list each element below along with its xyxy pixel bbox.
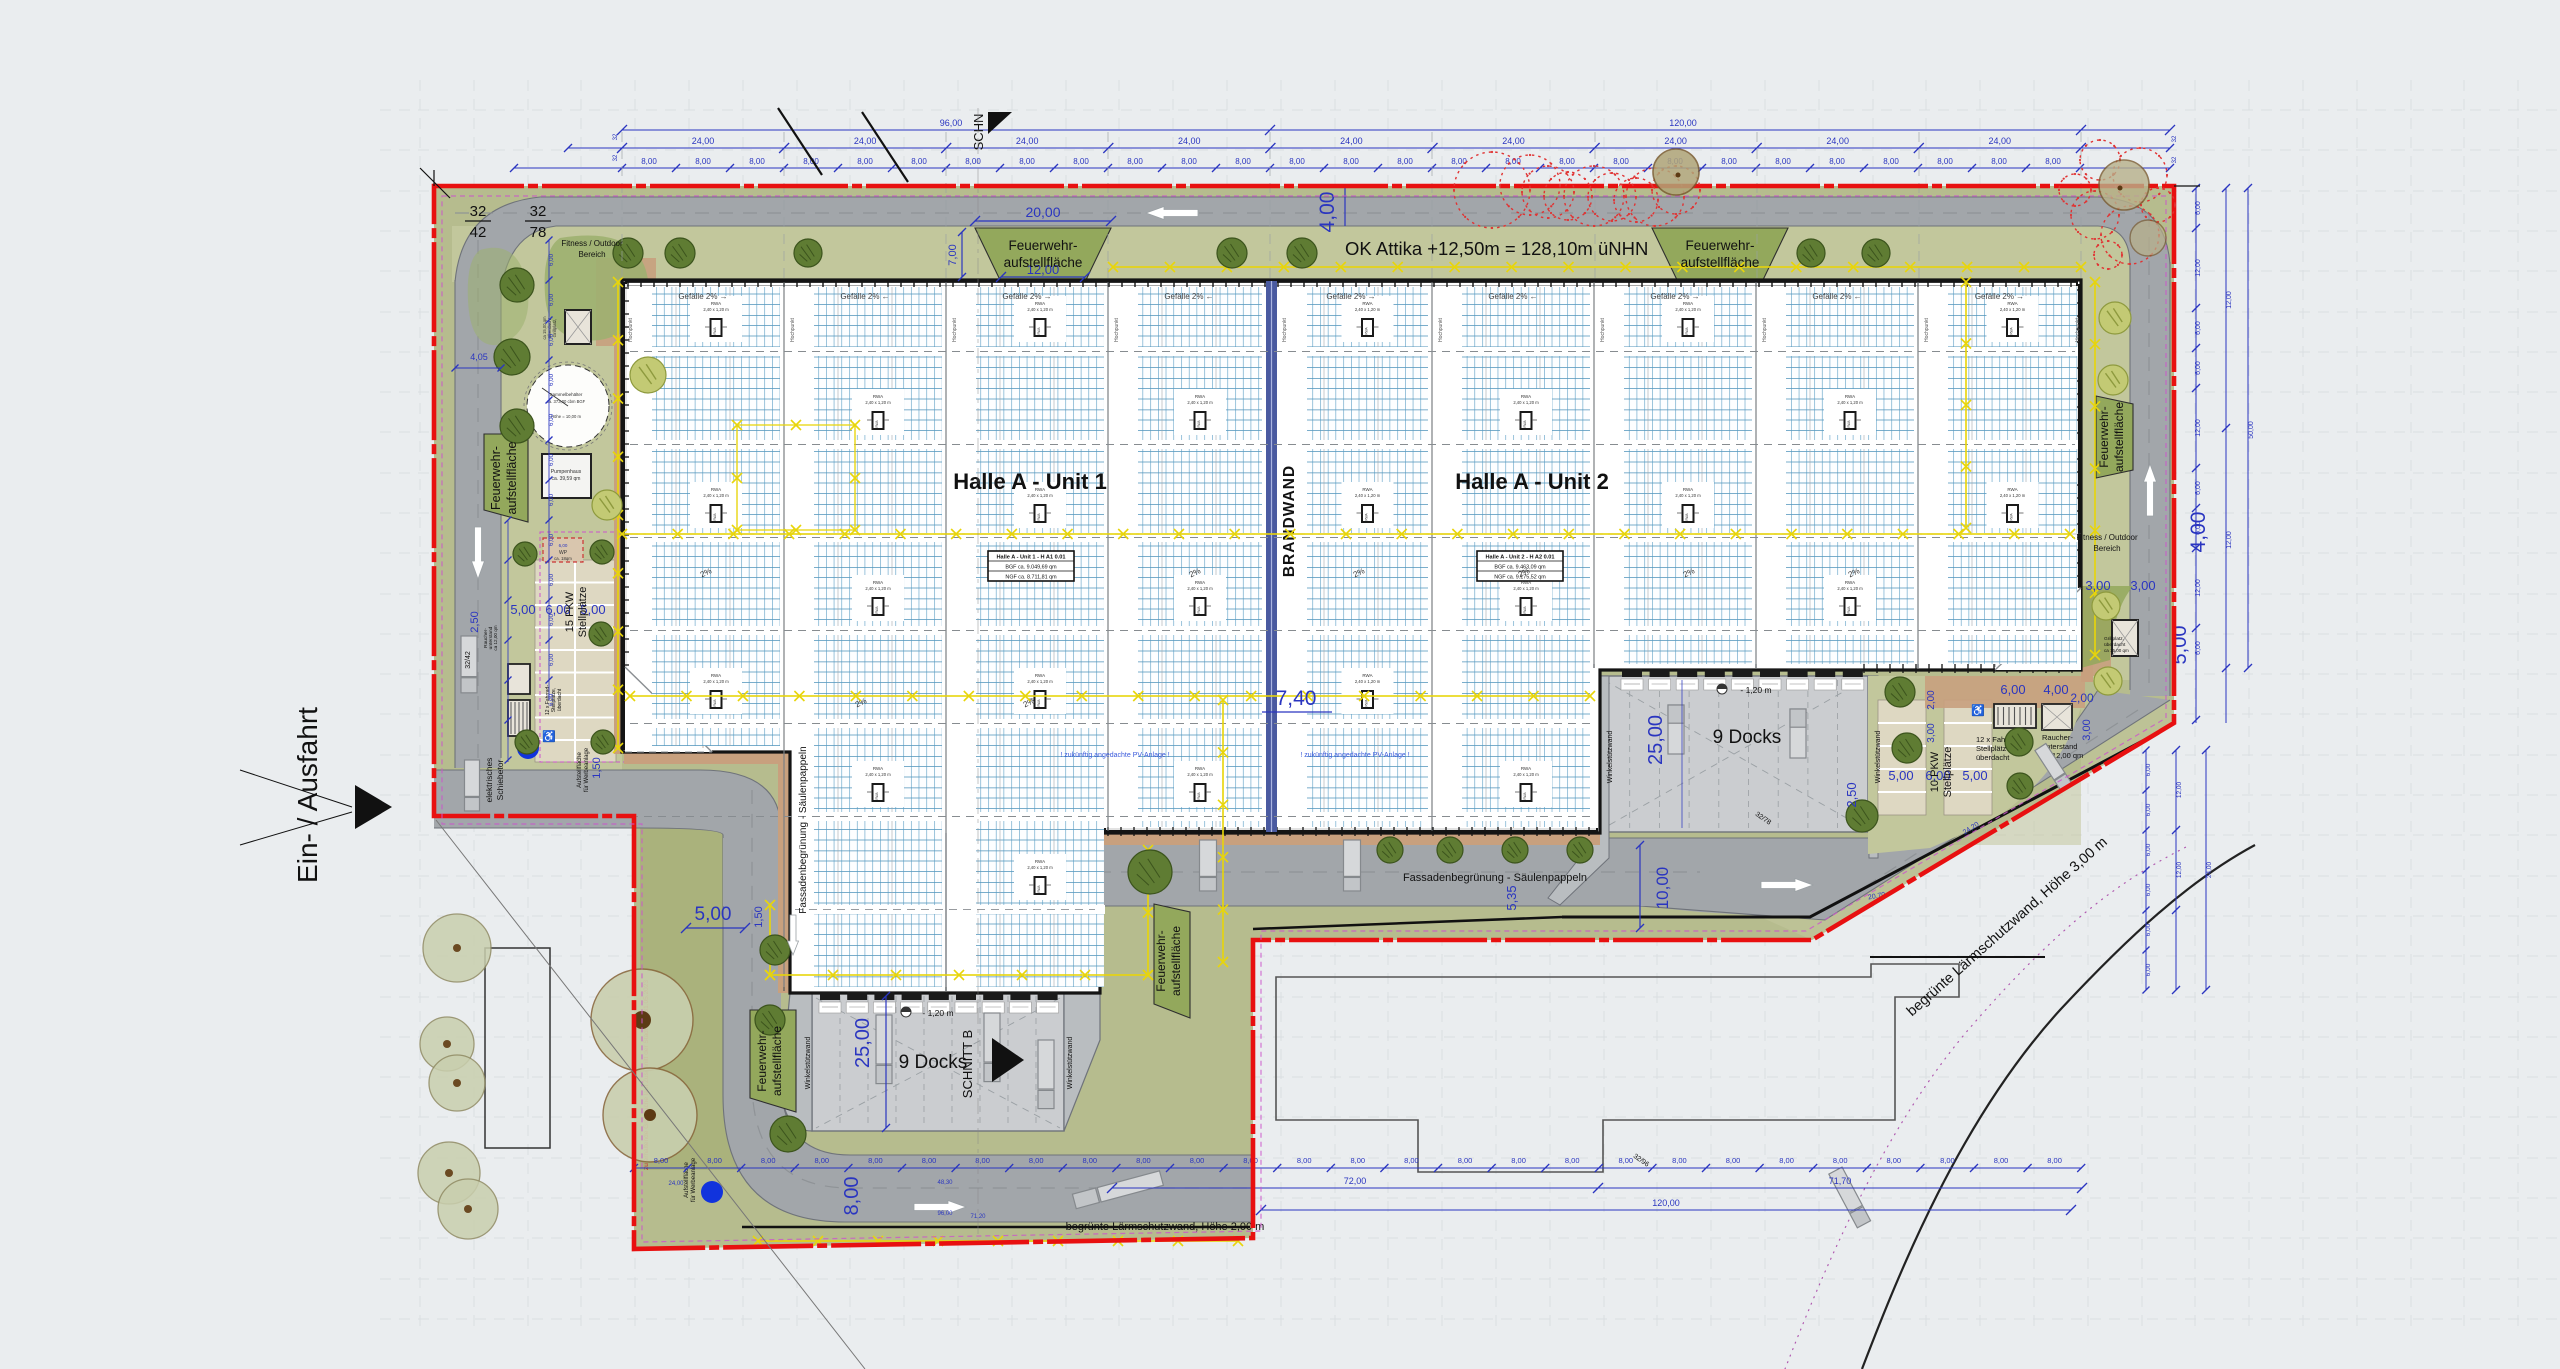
svg-text:Winkelstützwand: Winkelstützwand <box>805 1037 812 1090</box>
svg-text:RWA: RWA <box>1037 326 1041 334</box>
svg-text:Hochpunkt: Hochpunkt <box>1438 317 1444 342</box>
svg-text:120,00: 120,00 <box>1652 1198 1680 1208</box>
svg-text:8,00: 8,00 <box>1243 1156 1258 1165</box>
svg-text:RWA: RWA <box>1195 580 1205 585</box>
svg-text:5,00: 5,00 <box>1962 768 1987 783</box>
svg-text:RWA: RWA <box>1683 301 1693 306</box>
svg-text:10 PKW: 10 PKW <box>1929 751 1941 792</box>
svg-text:6,00: 6,00 <box>548 653 555 666</box>
svg-text:2,40 x 1,20 m: 2,40 x 1,20 m <box>703 493 729 498</box>
svg-text:aufstellfläche: aufstellfläche <box>505 441 519 514</box>
svg-text:6,00: 6,00 <box>2000 682 2025 697</box>
svg-text:RWA: RWA <box>1035 301 1045 306</box>
svg-text:12,00: 12,00 <box>2226 531 2233 549</box>
svg-text:24,00: 24,00 <box>1340 136 1363 146</box>
svg-text:RWA: RWA <box>711 301 721 306</box>
svg-text:Raucher-: Raucher- <box>2042 733 2073 742</box>
svg-text:2,40 x 1,20 m: 2,40 x 1,20 m <box>703 307 729 312</box>
svg-text:6,00: 6,00 <box>2195 201 2202 215</box>
svg-text:für Werbeanlage: für Werbeanlage <box>691 1157 697 1202</box>
svg-text:Gefälle 2% ←: Gefälle 2% ← <box>1812 292 1861 301</box>
svg-text:48,30: 48,30 <box>937 1180 953 1186</box>
svg-text:8,00: 8,00 <box>1029 1156 1044 1165</box>
svg-text:12,00: 12,00 <box>2176 781 2183 798</box>
svg-text:2,40 x 1,20 m: 2,40 x 1,20 m <box>1837 400 1863 405</box>
svg-text:96,00: 96,00 <box>937 1211 953 1217</box>
svg-text:5,00: 5,00 <box>510 602 535 617</box>
svg-text:aufstellfläche: aufstellfläche <box>2112 402 2126 472</box>
svg-text:für Werbeanlage: für Werbeanlage <box>584 747 590 792</box>
svg-text:RWA: RWA <box>1523 419 1527 427</box>
svg-text:RWA: RWA <box>1362 487 1372 492</box>
svg-text:Feuerwehr-: Feuerwehr- <box>1685 238 1754 253</box>
svg-text:12,00: 12,00 <box>2195 259 2202 277</box>
svg-text:2,40 x 1,20 m: 2,40 x 1,20 m <box>1187 772 1213 777</box>
svg-text:120,00: 120,00 <box>1669 118 1697 128</box>
svg-text:NGF ca. 8.711,81 qm: NGF ca. 8.711,81 qm <box>1005 575 1057 581</box>
svg-text:6,00: 6,00 <box>2145 923 2152 936</box>
svg-text:RWA: RWA <box>1683 487 1693 492</box>
svg-text:8,00: 8,00 <box>2045 157 2061 166</box>
svg-text:8,00: 8,00 <box>1883 157 1899 166</box>
svg-text:Gefälle 2% →: Gefälle 2% → <box>1650 292 1699 301</box>
svg-text:8,00: 8,00 <box>695 157 711 166</box>
svg-text:6,00: 6,00 <box>2195 481 2202 495</box>
svg-text:12,00: 12,00 <box>2176 861 2183 878</box>
svg-text:6,00: 6,00 <box>2145 803 2152 816</box>
svg-text:RWA: RWA <box>1685 512 1689 520</box>
svg-text:Fitness / Outdoor: Fitness / Outdoor <box>2076 533 2138 542</box>
svg-text:25,00: 25,00 <box>852 1018 874 1068</box>
svg-text:Höhe = 10,00 m: Höhe = 10,00 m <box>551 414 581 419</box>
svg-text:8,00: 8,00 <box>965 157 981 166</box>
svg-text:RWA: RWA <box>1362 301 1372 306</box>
svg-text:♿: ♿ <box>1971 704 1985 717</box>
svg-text:8,00: 8,00 <box>1775 157 1791 166</box>
svg-text:6,00: 6,00 <box>548 573 555 586</box>
svg-text:6,00: 6,00 <box>559 543 568 548</box>
svg-text:8,00: 8,00 <box>1886 1156 1901 1165</box>
svg-text:2,40 x 1,20 m: 2,40 x 1,20 m <box>1675 493 1701 498</box>
svg-text:Hochpunkt: Hochpunkt <box>1282 317 1288 342</box>
svg-text:24,00: 24,00 <box>1502 136 1525 146</box>
svg-text:8,00: 8,00 <box>868 1156 883 1165</box>
svg-text:RWA: RWA <box>1845 394 1855 399</box>
svg-text:8,00: 8,00 <box>761 1156 776 1165</box>
svg-text:Gefälle 2% ←: Gefälle 2% ← <box>840 292 889 301</box>
svg-text:8,00: 8,00 <box>1940 1156 1955 1165</box>
svg-text:96,00: 96,00 <box>940 118 963 128</box>
svg-text:RWA: RWA <box>713 326 717 334</box>
svg-text:Fitness / Outdoor: Fitness / Outdoor <box>561 239 623 248</box>
svg-text:RWA: RWA <box>711 487 721 492</box>
svg-text:begrünte Lärmschutzwand, Höhe: begrünte Lärmschutzwand, Höhe 2,00 m <box>1066 1221 1265 1233</box>
svg-text:8,00: 8,00 <box>1779 1156 1794 1165</box>
svg-text:RWA: RWA <box>1195 394 1205 399</box>
svg-text:Winkelstützwand: Winkelstützwand <box>1875 731 1882 784</box>
svg-text:2,50: 2,50 <box>1844 782 1859 807</box>
svg-text:32: 32 <box>470 203 487 220</box>
svg-text:Halle A - Unit 1 - H A1 0.01: Halle A - Unit 1 - H A1 0.01 <box>996 555 1065 561</box>
svg-text:32: 32 <box>2172 135 2178 142</box>
svg-text:! zukünftig angedachte PV-Anla: ! zukünftig angedachte PV-Anlage ! <box>1060 752 1169 759</box>
svg-text:8,00: 8,00 <box>1451 157 1467 166</box>
svg-text:Fassadenbegrünung - Säulenpapp: Fassadenbegrünung - Säulenpappeln <box>1403 872 1587 884</box>
svg-text:ca 12,00 qm: ca 12,00 qm <box>493 625 498 650</box>
svg-text:6,00: 6,00 <box>2145 843 2152 856</box>
svg-text:RWA: RWA <box>1197 791 1201 799</box>
svg-text:Pumpenhaus: Pumpenhaus <box>551 469 582 475</box>
svg-text:2,40 x 1,20 m: 2,40 x 1,20 m <box>865 400 891 405</box>
svg-text:24,00: 24,00 <box>1826 136 1849 146</box>
svg-text:2,40 x 1,20 m: 2,40 x 1,20 m <box>1027 307 1053 312</box>
svg-text:8,00: 8,00 <box>1019 157 1035 166</box>
svg-text:ca 15,00 qm: ca 15,00 qm <box>2104 648 2129 653</box>
svg-text:8,00: 8,00 <box>1618 1156 1633 1165</box>
svg-text:4,05: 4,05 <box>470 352 488 362</box>
svg-text:8,00: 8,00 <box>654 1156 669 1165</box>
svg-text:8,00: 8,00 <box>1235 157 1251 166</box>
svg-text:6,00: 6,00 <box>2195 641 2202 655</box>
svg-text:Schiebetor: Schiebetor <box>495 760 505 801</box>
svg-text:24,00: 24,00 <box>1664 136 1687 146</box>
svg-text:8,00: 8,00 <box>857 157 873 166</box>
svg-text:2,40 x 1,20 m: 2,40 x 1,20 m <box>865 772 891 777</box>
svg-text:32: 32 <box>613 133 619 140</box>
svg-text:Gefälle 2% →: Gefälle 2% → <box>1002 292 1051 301</box>
svg-text:8,00: 8,00 <box>1404 1156 1419 1165</box>
svg-text:24,00: 24,00 <box>692 136 715 146</box>
svg-text:aufstellfläche: aufstellfläche <box>1681 255 1760 270</box>
svg-text:5,00: 5,00 <box>1888 768 1913 783</box>
svg-text:Gefälle 2% →: Gefälle 2% → <box>678 292 727 301</box>
svg-text:Gefälle 2% →: Gefälle 2% → <box>1326 292 1375 301</box>
svg-text:25,00: 25,00 <box>1645 715 1667 765</box>
svg-text:Hochpunkt: Hochpunkt <box>628 317 634 342</box>
svg-text:ca. 373,00 cbm BGF: ca. 373,00 cbm BGF <box>547 399 586 404</box>
svg-text:32: 32 <box>2172 156 2178 163</box>
svg-text:42: 42 <box>470 224 487 241</box>
svg-text:RWA: RWA <box>1037 512 1041 520</box>
svg-text:8,00: 8,00 <box>1136 1156 1151 1165</box>
svg-text:RWA: RWA <box>1521 394 1531 399</box>
svg-text:8,00: 8,00 <box>1297 1156 1312 1165</box>
svg-text:BGF ca. 9.049,69 qm: BGF ca. 9.049,69 qm <box>1005 565 1057 571</box>
svg-text:RWA: RWA <box>713 512 717 520</box>
svg-text:12,00: 12,00 <box>2195 579 2202 597</box>
svg-text:8,00: 8,00 <box>1343 157 1359 166</box>
svg-text:8,00: 8,00 <box>1181 157 1197 166</box>
svg-text:7,40: 7,40 <box>1276 687 1317 710</box>
svg-text:8,00: 8,00 <box>1082 1156 1097 1165</box>
svg-text:2,00: 2,00 <box>2070 691 2094 705</box>
svg-text:4,00: 4,00 <box>1316 192 1339 233</box>
svg-text:Stellplätze: Stellplätze <box>1942 747 1954 798</box>
svg-text:20,00: 20,00 <box>1025 204 1060 220</box>
svg-text:2,40 x 1,20 m: 2,40 x 1,20 m <box>1837 586 1863 591</box>
svg-text:Halle A - Unit 1: Halle A - Unit 1 <box>953 469 1107 494</box>
svg-text:aufstellfläche: aufstellfläche <box>1169 926 1183 996</box>
svg-text:Winkelstützwand: Winkelstützwand <box>1607 731 1614 784</box>
svg-text:RWA: RWA <box>1197 419 1201 427</box>
svg-text:aufstellfläche: aufstellfläche <box>1004 255 1083 270</box>
svg-text:RWA: RWA <box>1523 605 1527 613</box>
svg-text:78: 78 <box>530 224 547 241</box>
svg-text:8,00: 8,00 <box>749 157 765 166</box>
svg-text:6,00: 6,00 <box>548 493 555 506</box>
svg-text:2,00: 2,00 <box>1926 690 1937 710</box>
svg-text:9 Docks: 9 Docks <box>899 1052 968 1073</box>
svg-text:Feuerwehr-: Feuerwehr- <box>755 1030 769 1091</box>
svg-text:8,00: 8,00 <box>1127 157 1143 166</box>
svg-text:8,00: 8,00 <box>1937 157 1953 166</box>
svg-text:6,00: 6,00 <box>548 253 555 266</box>
svg-text:2,40 x 1,20 m: 2,40 x 1,20 m <box>1187 586 1213 591</box>
svg-text:2,40 x 1,20 m: 2,40 x 1,20 m <box>1355 679 1381 684</box>
svg-text:BRANDWAND: BRANDWAND <box>1281 465 1298 577</box>
svg-text:RWA: RWA <box>1685 326 1689 334</box>
svg-text:Hochpunkt: Hochpunkt <box>2075 317 2081 342</box>
svg-text:RWA: RWA <box>1035 673 1045 678</box>
svg-text:8,00: 8,00 <box>1397 157 1413 166</box>
svg-text:3,00: 3,00 <box>1926 723 1937 743</box>
svg-text:3,00: 3,00 <box>2081 719 2093 740</box>
svg-text:32/42: 32/42 <box>465 651 472 669</box>
svg-text:Feuerwehr-: Feuerwehr- <box>1154 930 1168 991</box>
svg-text:2,40 x 1,20 m: 2,40 x 1,20 m <box>1355 493 1381 498</box>
svg-text:2,40 x 1,20 m: 2,40 x 1,20 m <box>1355 307 1381 312</box>
svg-text:6,00: 6,00 <box>548 453 555 466</box>
svg-text:8,00: 8,00 <box>911 157 927 166</box>
svg-text:8,00: 8,00 <box>1505 157 1521 166</box>
svg-text:1,50: 1,50 <box>591 757 603 778</box>
svg-text:9 Docks: 9 Docks <box>1713 727 1782 748</box>
svg-text:2,40 x 1,20 m: 2,40 x 1,20 m <box>1027 865 1053 870</box>
svg-text:2,40 x 1,20 m: 2,40 x 1,20 m <box>1187 400 1213 405</box>
svg-text:12,00: 12,00 <box>2195 419 2202 437</box>
svg-text:6,00: 6,00 <box>2195 321 2202 335</box>
svg-text:RWA: RWA <box>873 766 883 771</box>
svg-text:Feuerwehr-: Feuerwehr- <box>2097 406 2111 467</box>
svg-text:2,40 x 1,20 m: 2,40 x 1,20 m <box>2000 307 2026 312</box>
svg-text:überdacht: überdacht <box>1976 753 2010 762</box>
svg-text:4,00: 4,00 <box>2187 512 2210 553</box>
svg-text:SCHNITT B: SCHNITT B <box>960 1030 975 1098</box>
svg-text:8,00: 8,00 <box>2047 1156 2062 1165</box>
svg-text:Sammelbehälter: Sammelbehälter <box>550 392 583 397</box>
svg-text:8,00: 8,00 <box>922 1156 937 1165</box>
svg-text:6,00: 6,00 <box>2145 963 2152 976</box>
svg-text:8,00: 8,00 <box>1511 1156 1526 1165</box>
svg-text:Feuerwehr-: Feuerwehr- <box>1008 238 1077 253</box>
svg-text:8,00: 8,00 <box>1350 1156 1365 1165</box>
svg-text:Gefälle 2% ←: Gefälle 2% ← <box>1488 292 1537 301</box>
svg-text:2,40 x 1,20 m: 2,40 x 1,20 m <box>1513 400 1539 405</box>
svg-text:2,40 x 1,20 m: 2,40 x 1,20 m <box>703 679 729 684</box>
svg-text:24,00: 24,00 <box>854 136 877 146</box>
svg-text:24,00: 24,00 <box>1016 136 1039 146</box>
svg-text:Halle A - Unit 2 - H A2 0.01: Halle A - Unit 2 - H A2 0.01 <box>1485 555 1554 561</box>
svg-text:6,00: 6,00 <box>2195 361 2202 375</box>
svg-text:RWA: RWA <box>875 605 879 613</box>
svg-text:RWA: RWA <box>875 419 879 427</box>
svg-text:Stellplätze: Stellplätze <box>577 587 589 638</box>
svg-text:2,40 x 1,20 m: 2,40 x 1,20 m <box>1513 772 1539 777</box>
svg-text:2,40 x 1,20 m: 2,40 x 1,20 m <box>1675 307 1701 312</box>
svg-text:♿: ♿ <box>542 730 556 743</box>
svg-text:8,00: 8,00 <box>1613 157 1629 166</box>
svg-text:Hochpunkt: Hochpunkt <box>1600 317 1606 342</box>
svg-text:8,00: 8,00 <box>1726 1156 1741 1165</box>
svg-text:2,40 x 1,20 m: 2,40 x 1,20 m <box>1027 679 1053 684</box>
svg-text:2,40 x 1,20 m: 2,40 x 1,20 m <box>1513 586 1539 591</box>
svg-text:8,00: 8,00 <box>1073 157 1089 166</box>
svg-text:7,00: 7,00 <box>947 244 959 265</box>
svg-text:überdacht: überdacht <box>557 688 563 711</box>
svg-text:Grillplatz,: Grillplatz, <box>2104 636 2124 642</box>
svg-text:Hochpunkt: Hochpunkt <box>952 317 958 342</box>
svg-text:8,00: 8,00 <box>1289 157 1305 166</box>
svg-text:12,00: 12,00 <box>2226 291 2233 309</box>
svg-text:elektrisches: elektrisches <box>484 758 494 803</box>
svg-text:RWA: RWA <box>873 394 883 399</box>
svg-text:8,00: 8,00 <box>1190 1156 1205 1165</box>
svg-text:RWA: RWA <box>2010 512 2014 520</box>
svg-text:8,00: 8,00 <box>841 1177 863 1216</box>
svg-text:71,70: 71,70 <box>1829 1176 1852 1186</box>
svg-text:Hochpunkt: Hochpunkt <box>1762 317 1768 342</box>
svg-text:ca 15,00 qm: ca 15,00 qm <box>542 316 547 340</box>
svg-text:Bereich: Bereich <box>2093 544 2120 553</box>
svg-text:2,40 x 1,20 m: 2,40 x 1,20 m <box>865 586 891 591</box>
svg-text:3,00: 3,00 <box>2085 578 2110 593</box>
svg-text:Halle A - Unit 2: Halle A - Unit 2 <box>1455 469 1609 494</box>
svg-text:8,00: 8,00 <box>1458 1156 1473 1165</box>
svg-text:RWA: RWA <box>1035 859 1045 864</box>
svg-text:ca. 39,59 qm: ca. 39,59 qm <box>552 476 581 482</box>
svg-text:8,00: 8,00 <box>707 1156 722 1165</box>
svg-text:Aufstellfläche: Aufstellfläche <box>577 751 583 787</box>
svg-text:8,00: 8,00 <box>641 157 657 166</box>
svg-text:24,00: 24,00 <box>1989 136 2012 146</box>
svg-text:RWA: RWA <box>1845 580 1855 585</box>
svg-text:6,00: 6,00 <box>548 333 555 346</box>
svg-text:RWA: RWA <box>875 791 879 799</box>
svg-text:3,00: 3,00 <box>2130 578 2155 593</box>
svg-text:aufstellfläche: aufstellfläche <box>770 1026 784 1096</box>
svg-text:Hochpunkt: Hochpunkt <box>1924 317 1930 342</box>
svg-text:8,00: 8,00 <box>1829 157 1845 166</box>
svg-text:Gefälle 2% ←: Gefälle 2% ← <box>1164 292 1213 301</box>
svg-text:6,00: 6,00 <box>2145 883 2152 896</box>
svg-text:8,00: 8,00 <box>1559 157 1575 166</box>
svg-text:24,00: 24,00 <box>2206 861 2213 878</box>
svg-text:RWA: RWA <box>2007 487 2017 492</box>
svg-text:8,00: 8,00 <box>1672 1156 1687 1165</box>
svg-text:5,35: 5,35 <box>1504 885 1519 910</box>
svg-text:4,00: 4,00 <box>2043 682 2068 697</box>
svg-text:RWA: RWA <box>1365 326 1369 334</box>
svg-text:RWA: RWA <box>2010 326 2014 334</box>
svg-text:6,00: 6,00 <box>2145 763 2152 776</box>
svg-text:Feuerwehr-: Feuerwehr- <box>489 446 503 510</box>
svg-text:15 PKW: 15 PKW <box>564 591 576 632</box>
svg-text:24,00: 24,00 <box>1178 136 1201 146</box>
svg-text:6,00: 6,00 <box>548 413 555 426</box>
svg-text:RWA: RWA <box>1195 766 1205 771</box>
svg-text:32: 32 <box>613 154 619 161</box>
svg-text:RWA: RWA <box>2007 301 2017 306</box>
svg-text:6,00: 6,00 <box>548 373 555 386</box>
svg-text:72,00: 72,00 <box>1344 1176 1367 1186</box>
svg-text:6,00: 6,00 <box>548 533 555 546</box>
svg-text:OK Attika +12,50m = 128,10m üN: OK Attika +12,50m = 128,10m üNHN <box>1345 238 1648 259</box>
svg-text:RWA: RWA <box>1365 512 1369 520</box>
svg-text:1,50: 1,50 <box>753 906 765 927</box>
svg-text:RWA: RWA <box>1197 605 1201 613</box>
svg-text:50,00: 50,00 <box>2248 421 2255 439</box>
svg-text:8,00: 8,00 <box>814 1156 829 1165</box>
svg-text:RWA: RWA <box>713 698 717 706</box>
svg-text:RWA: RWA <box>1521 766 1531 771</box>
svg-text:6,00: 6,00 <box>548 293 555 306</box>
svg-text:RWA: RWA <box>711 673 721 678</box>
svg-text:10,00: 10,00 <box>1653 867 1672 910</box>
svg-text:Gefälle 2% →: Gefälle 2% → <box>1975 292 2024 301</box>
svg-text:RWA: RWA <box>1523 791 1527 799</box>
svg-text:32: 32 <box>530 203 547 220</box>
svg-text:Bereich: Bereich <box>578 250 605 259</box>
svg-text:RWA: RWA <box>1037 884 1041 892</box>
svg-text:8,00: 8,00 <box>1565 1156 1580 1165</box>
svg-text:2,40 x 1,20 m: 2,40 x 1,20 m <box>2000 493 2026 498</box>
svg-text:RWA: RWA <box>1037 698 1041 706</box>
svg-text:8,00: 8,00 <box>1833 1156 1848 1165</box>
svg-text:8,00: 8,00 <box>1721 157 1737 166</box>
svg-text:RWA: RWA <box>1847 419 1851 427</box>
svg-text:RWA: RWA <box>1847 605 1851 613</box>
svg-text:Ein- / Ausfahrt: Ein- / Ausfahrt <box>292 707 323 883</box>
svg-text:2,50: 2,50 <box>469 611 481 632</box>
svg-text:8,00: 8,00 <box>975 1156 990 1165</box>
svg-text:Hochpunkt: Hochpunkt <box>1114 317 1120 342</box>
svg-text:- 1,20 m: - 1,20 m <box>1740 685 1771 695</box>
svg-text:8,00: 8,00 <box>1994 1156 2009 1165</box>
svg-text:- 1,20 m: - 1,20 m <box>922 1008 953 1018</box>
svg-text:SCHN: SCHN <box>971 114 986 151</box>
svg-text:8,00: 8,00 <box>1991 157 2007 166</box>
svg-text:! zukünftig angedachte PV-Anla: ! zukünftig angedachte PV-Anlage ! <box>1300 752 1409 759</box>
svg-text:Fassadenbegrünung - Säulenpapp: Fassadenbegrünung - Säulenpappeln <box>798 746 809 913</box>
svg-text:24,00: 24,00 <box>668 1181 684 1187</box>
svg-text:6,00: 6,00 <box>548 693 555 706</box>
svg-text:ca. 18qm: ca. 18qm <box>554 556 572 561</box>
svg-text:5,00: 5,00 <box>695 904 732 925</box>
svg-text:Winkelstützwand: Winkelstützwand <box>1067 1037 1074 1090</box>
svg-text:Hochpunkt: Hochpunkt <box>790 317 796 342</box>
svg-text:RWA: RWA <box>873 580 883 585</box>
svg-text:RWA: RWA <box>1362 673 1372 678</box>
